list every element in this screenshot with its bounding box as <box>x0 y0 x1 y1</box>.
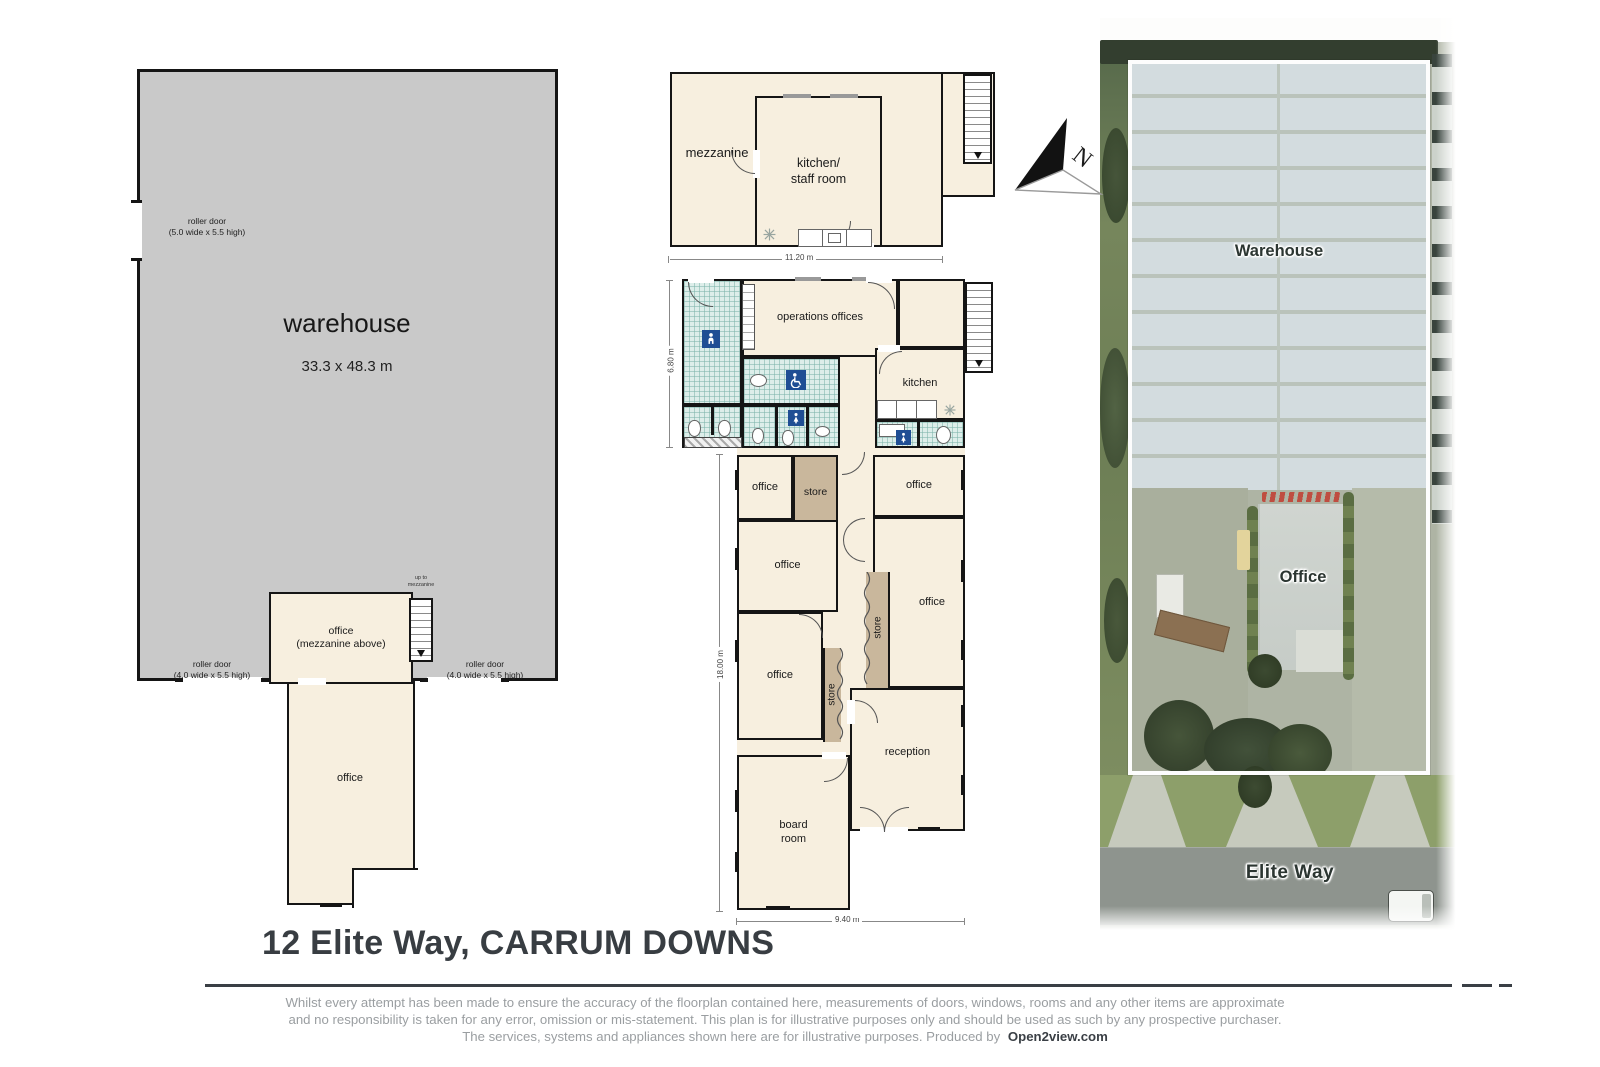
dim-lower-height: 18.00 m <box>716 647 725 682</box>
toilet-fixture <box>752 428 764 444</box>
aerial-office-label: Office <box>1258 568 1348 587</box>
roller-door-bl-label: roller door (4.0 wide x 5.5 high) <box>152 659 272 680</box>
store-strip-left-label: store <box>827 672 838 718</box>
office-mezzanine-room: office (mezzanine above) <box>269 592 413 684</box>
disclaimer: Whilst every attempt has been made to en… <box>120 994 1450 1045</box>
disclaimer-line1: Whilst every attempt has been made to en… <box>120 994 1450 1011</box>
warehouse-room <box>137 69 558 681</box>
title-rule <box>205 984 1452 987</box>
roller-door-br-label: roller door (4.0 wide x 5.5 high) <box>425 659 545 680</box>
warehouse-label: warehouse <box>197 308 497 339</box>
shelf-wavy-edge <box>863 572 871 688</box>
ac-snowflake-icon <box>944 404 956 416</box>
female-toilet-icon <box>896 430 911 445</box>
store-a-room: store <box>793 455 838 530</box>
toilet-fixture <box>782 430 794 446</box>
basin-fixture <box>750 374 767 387</box>
office-lower-notch <box>352 868 418 908</box>
ac-snowflake-icon <box>763 228 776 241</box>
office-lower-label: office <box>300 772 400 786</box>
north-arrow-icon: N <box>1005 112 1105 200</box>
basin-fixture <box>815 426 830 437</box>
top-right-room <box>898 279 965 348</box>
dim-top-height: 6.80 m <box>667 345 676 375</box>
office-b-room: office <box>737 520 838 612</box>
aerial-photo: Warehouse Office Elite Way <box>1100 18 1462 930</box>
accessible-toilet-icon <box>786 370 806 390</box>
stairs-mezzanine <box>963 74 992 164</box>
page-title: 12 Elite Way, CARRUM DOWNS <box>262 924 774 963</box>
property-boundary-frame <box>1128 60 1430 775</box>
floor-hatch <box>684 437 742 448</box>
disclaimer-line3: The services, systems and appliances sho… <box>120 1028 1450 1045</box>
sink-fixture <box>828 233 841 243</box>
office-d-room: office <box>873 455 965 517</box>
brand-name: Open2view.com <box>1008 1029 1108 1044</box>
female-toilet-icon <box>788 410 804 426</box>
aerial-street-label: Elite Way <box>1170 862 1410 884</box>
warehouse-dims: 33.3 x 48.3 m <box>197 358 497 375</box>
stairs-note: up to mezzanine <box>394 575 448 589</box>
disclaimer-line2: and no responsibility is taken for any e… <box>120 1011 1450 1028</box>
shelving-strip <box>742 284 755 350</box>
office-a-room: office <box>737 455 793 520</box>
toilet-fixture <box>718 420 731 437</box>
north-letter: N <box>1067 142 1097 173</box>
kitchen-counter-fixture <box>877 400 937 419</box>
floorplan-sheet: roller door (5.0 wide x 5.5 high) wareho… <box>0 0 1600 1067</box>
aerial-warehouse-label: Warehouse <box>1128 242 1430 261</box>
store-strip-right-label: store <box>873 605 884 651</box>
mezzanine-width-dim: 11.20 m <box>782 253 816 262</box>
male-toilet-icon <box>702 330 720 348</box>
toilet-fixture <box>688 420 701 437</box>
roller-door-side-label: roller door (5.0 wide x 5.5 high) <box>142 216 272 237</box>
kitchen-staff-room: kitchen/ staff room <box>755 96 882 247</box>
toilet-fixture <box>936 426 951 444</box>
